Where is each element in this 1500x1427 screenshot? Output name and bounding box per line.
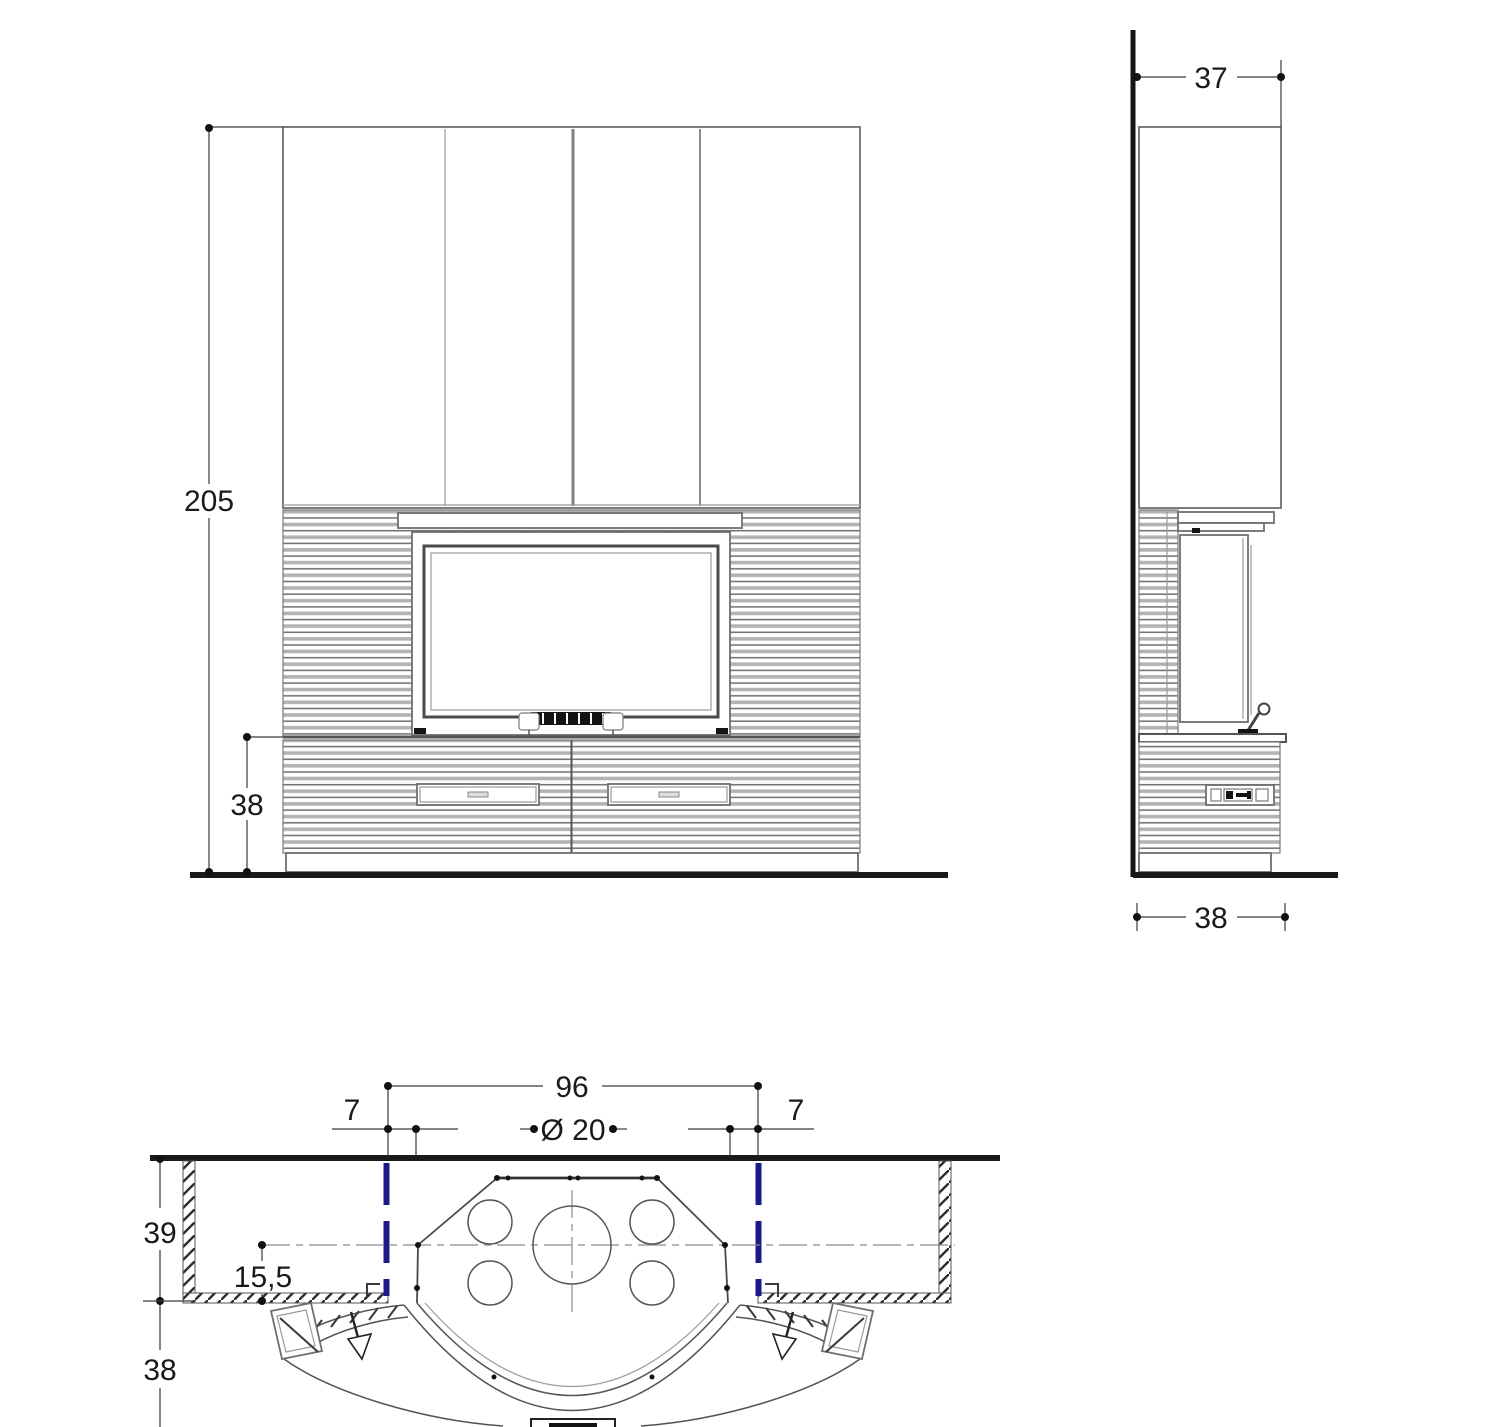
- front-elevation-view: [190, 127, 948, 875]
- front-grille-clip-right: [603, 713, 623, 730]
- plan-bow-front-inner-arc: [417, 1303, 727, 1396]
- side-firebox-body: [1180, 535, 1248, 722]
- plan-hearth-dot-left: [492, 1375, 497, 1380]
- plan-front-wall-right: [758, 1293, 951, 1303]
- plan-depth-dot-top: [156, 1155, 164, 1163]
- side-lintel-lip: [1178, 523, 1264, 531]
- front-firebox-door-frame: [424, 546, 718, 717]
- side-depth-dot-right: [1277, 73, 1285, 81]
- front-height-dot-top: [205, 124, 213, 132]
- plan-hearth-dot-right: [650, 1375, 655, 1380]
- plan-bow-front-third-arc: [425, 1303, 719, 1387]
- side-top-depth-label: 37: [1194, 62, 1227, 95]
- plan-hearth-sweep-right: [641, 1359, 860, 1426]
- plan-flue-center-offset-label: 15,5: [234, 1261, 292, 1294]
- plan-hearth-depth-label: 38: [143, 1354, 176, 1387]
- front-grille-clip-left: [519, 713, 539, 730]
- side-louver-column: [1139, 510, 1178, 737]
- plan-wing-wall-left: [271, 1303, 408, 1359]
- plan-width-dot-right: [754, 1082, 762, 1090]
- plan-flue-offset-dot-bottom: [258, 1297, 266, 1305]
- plan-flue-outlet-bottom-right: [630, 1261, 674, 1305]
- plan-right-inset-dot-a: [726, 1125, 734, 1133]
- front-drawer-right: [608, 784, 730, 805]
- plan-flue-dot-left: [530, 1125, 538, 1133]
- side-base-dot-right: [1281, 913, 1289, 921]
- plan-flue-outlet-top-left: [468, 1200, 512, 1244]
- side-elevation-view: [1133, 30, 1338, 877]
- plan-flue-offset-dot-top: [258, 1241, 266, 1249]
- plan-flue-outlet-top-right: [630, 1200, 674, 1244]
- plan-left-inset-label: 7: [344, 1094, 361, 1127]
- side-door-handle-knob: [1259, 704, 1270, 715]
- plan-flue-dot-right: [609, 1125, 617, 1133]
- side-drawer-profile: [1206, 785, 1274, 805]
- plan-enclosure-depth-label: 39: [143, 1217, 176, 1250]
- side-lintel-mark: [1192, 528, 1200, 533]
- side-hearth-slab: [1139, 734, 1286, 742]
- plan-width-dot-left: [384, 1082, 392, 1090]
- plan-right-inset-label: 7: [788, 1094, 805, 1127]
- front-hearth-height-label: 38: [230, 789, 263, 822]
- plan-front-latch-mark: [549, 1423, 597, 1427]
- side-plinth: [1139, 853, 1271, 872]
- side-depth-dot-left: [1133, 73, 1141, 81]
- side-lintel-top: [1178, 512, 1274, 523]
- plan-left-inset-dot-a: [384, 1125, 392, 1133]
- plan-opening-width-label: 96: [555, 1071, 588, 1104]
- plan-hearth-sweep-left: [284, 1359, 503, 1426]
- plan-flue-diameter-label: Ø 20: [540, 1114, 605, 1147]
- front-firebox-corner-mark-right: [716, 728, 728, 734]
- plan-right-inset-dot-b: [754, 1125, 762, 1133]
- front-mantel-shelf: [398, 513, 742, 528]
- front-drawer-left: [417, 784, 539, 805]
- front-hearth-dot-bottom: [243, 868, 251, 876]
- plan-bow-front-outer-arc: [404, 1305, 740, 1411]
- front-height-dot-bottom: [205, 868, 213, 876]
- front-height-label: 205: [184, 485, 234, 518]
- plan-wing-wall-right: [736, 1303, 873, 1359]
- plan-left-wall: [183, 1161, 195, 1293]
- front-plinth: [286, 853, 858, 872]
- plan-flue-outlet-bottom-left: [468, 1261, 512, 1305]
- side-hood-panel: [1139, 127, 1281, 508]
- side-base-dot-left: [1133, 913, 1141, 921]
- front-firebox-corner-mark-left: [414, 728, 426, 734]
- front-hearth-dot-top: [243, 733, 251, 741]
- front-dimensions: 205 38: [184, 124, 283, 876]
- technical-drawing-page: 205 38: [0, 0, 1500, 1427]
- plan-dimensions: 96 7 7 Ø 20 39 15,5 38: [143, 1071, 814, 1427]
- side-base-depth-label: 38: [1194, 902, 1227, 935]
- drawing-canvas: 205 38: [0, 0, 1500, 1427]
- plan-right-wall: [939, 1161, 951, 1293]
- plan-front-wall-left: [183, 1293, 388, 1303]
- plan-left-inset-dot-b: [412, 1125, 420, 1133]
